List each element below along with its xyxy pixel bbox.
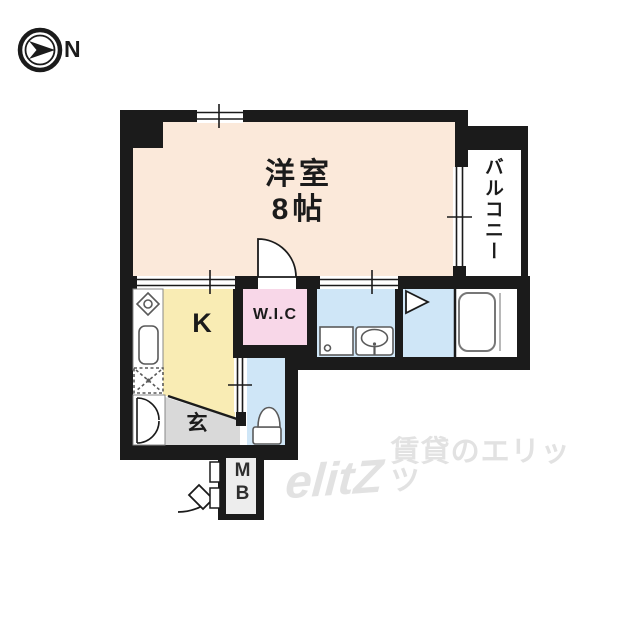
genkan-label: 玄 xyxy=(183,412,211,436)
kitchen-sink-icon xyxy=(139,326,158,364)
floorplan-page: N 洋室8帖 バルコニー K W.I.C 玄 MB elitZ 賃貸のエリッツ xyxy=(0,0,640,640)
floorplan-drawing xyxy=(0,0,640,640)
balcony-label: バルコニー xyxy=(481,157,503,279)
compass-arrow xyxy=(29,41,55,59)
washbasin-icon xyxy=(356,327,393,355)
watermark: elitZ 賃貸のエリッツ xyxy=(286,438,586,502)
washer-pan-icon xyxy=(320,327,353,355)
main-room-size: 8帖 xyxy=(272,193,327,226)
closet-doors xyxy=(133,395,165,445)
watermark-logo: elitZ xyxy=(284,452,385,506)
main-room-name: 洋室 xyxy=(265,158,333,191)
compass-icon xyxy=(20,30,60,70)
appliance-space-icon xyxy=(134,368,163,393)
wic-label: W.I.C xyxy=(243,306,307,324)
meter-box-label: MB xyxy=(229,460,253,506)
watermark-text: 賃貸のエリッツ xyxy=(391,438,586,502)
kitchen-counter xyxy=(133,289,163,370)
compass-n-label: N xyxy=(64,36,81,62)
main-room-label: 洋室8帖 xyxy=(214,158,384,227)
bathtub-icon xyxy=(459,293,500,351)
kitchen-label: K xyxy=(182,308,222,339)
